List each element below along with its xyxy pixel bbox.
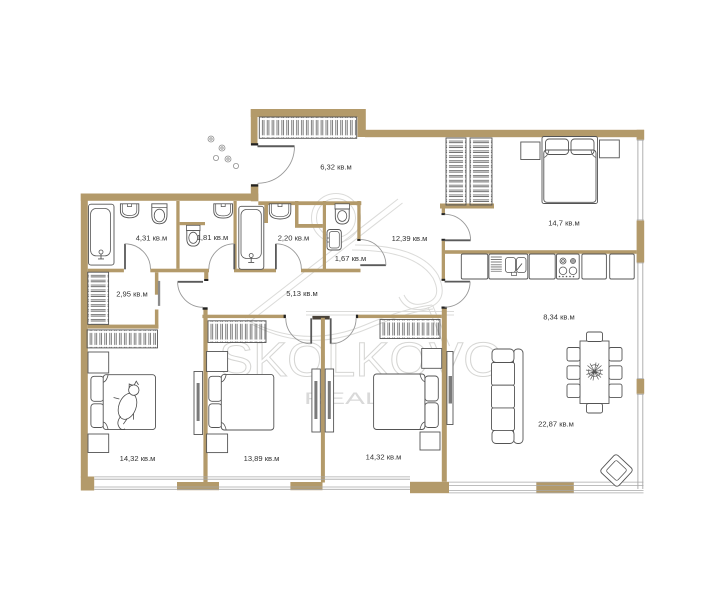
svg-text:22,87 кв.м: 22,87 кв.м bbox=[538, 419, 574, 428]
svg-text:14,32 кв.м: 14,32 кв.м bbox=[366, 452, 402, 461]
svg-text:1,81 кв.м: 1,81 кв.м bbox=[197, 233, 229, 242]
svg-text:8,34 кв.м: 8,34 кв.м bbox=[543, 312, 575, 321]
svg-text:14,32 кв.м: 14,32 кв.м bbox=[120, 454, 156, 463]
svg-text:14,7 кв.м: 14,7 кв.м bbox=[548, 219, 580, 228]
svg-text:2,95 кв.м: 2,95 кв.м bbox=[116, 289, 148, 298]
svg-text:2,20 кв.м: 2,20 кв.м bbox=[278, 233, 310, 242]
svg-text:1,67 кв.м: 1,67 кв.м bbox=[335, 254, 367, 263]
svg-text:6,32 кв.м: 6,32 кв.м bbox=[320, 163, 352, 172]
svg-text:12,39 кв.м: 12,39 кв.м bbox=[392, 234, 428, 243]
svg-text:13,89 кв.м: 13,89 кв.м bbox=[244, 454, 280, 463]
svg-text:5,13 кв.м: 5,13 кв.м bbox=[286, 289, 318, 298]
svg-text:4,31 кв.м: 4,31 кв.м bbox=[136, 233, 168, 242]
